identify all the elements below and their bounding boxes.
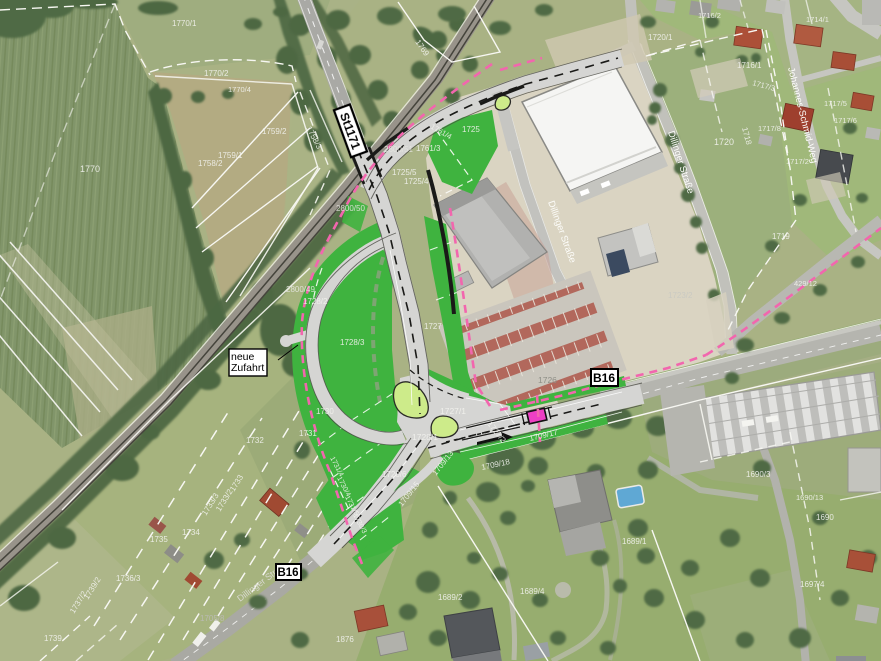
svg-text:1716/2: 1716/2 xyxy=(698,11,721,20)
svg-text:1705/8: 1705/8 xyxy=(200,614,225,623)
svg-text:1728/2: 1728/2 xyxy=(303,297,328,306)
svg-text:1736/3: 1736/3 xyxy=(116,574,141,583)
svg-text:1735: 1735 xyxy=(150,535,168,544)
svg-text:1689/2: 1689/2 xyxy=(438,593,463,602)
svg-text:2800/51: 2800/51 xyxy=(384,145,413,154)
svg-text:1690/13: 1690/13 xyxy=(796,493,823,502)
svg-text:1725: 1725 xyxy=(462,125,480,134)
svg-text:1727/1: 1727/1 xyxy=(440,406,466,416)
svg-text:1758/2: 1758/2 xyxy=(198,159,223,168)
svg-text:1731: 1731 xyxy=(299,429,317,438)
svg-text:1720/1: 1720/1 xyxy=(648,33,673,42)
svg-text:1716/1: 1716/1 xyxy=(737,61,762,70)
svg-text:2800/49: 2800/49 xyxy=(286,285,315,294)
svg-text:1689/1: 1689/1 xyxy=(622,537,647,546)
svg-text:1725/4: 1725/4 xyxy=(404,177,429,186)
svg-text:1719: 1719 xyxy=(772,232,790,241)
svg-text:1697/4: 1697/4 xyxy=(800,580,825,589)
svg-text:1689/4: 1689/4 xyxy=(520,587,545,596)
svg-text:1690/3: 1690/3 xyxy=(746,470,771,479)
svg-text:429/12: 429/12 xyxy=(794,279,817,288)
svg-text:1732: 1732 xyxy=(246,436,264,445)
svg-text:1717/8: 1717/8 xyxy=(758,124,781,133)
svg-text:1725/5: 1725/5 xyxy=(392,168,417,177)
svg-text:1876: 1876 xyxy=(336,635,354,644)
svg-text:1690: 1690 xyxy=(816,513,834,522)
svg-text:1759/2: 1759/2 xyxy=(262,127,287,136)
svg-text:1770/2: 1770/2 xyxy=(204,69,229,78)
svg-text:1714/1: 1714/1 xyxy=(806,15,829,24)
svg-text:1728/3: 1728/3 xyxy=(340,338,365,347)
svg-text:1717/5: 1717/5 xyxy=(824,99,847,108)
svg-text:1770/4: 1770/4 xyxy=(228,85,251,94)
svg-text:1717/6: 1717/6 xyxy=(834,116,857,125)
svg-text:1770: 1770 xyxy=(80,164,100,174)
svg-text:1734: 1734 xyxy=(182,528,200,537)
svg-text:1726: 1726 xyxy=(538,375,557,385)
svg-text:1717/2: 1717/2 xyxy=(786,157,809,166)
svg-text:B16: B16 xyxy=(277,567,298,579)
svg-text:Zufahrt: Zufahrt xyxy=(231,362,264,374)
svg-text:1730: 1730 xyxy=(316,407,334,416)
svg-text:1728/1: 1728/1 xyxy=(412,432,438,442)
svg-text:1739: 1739 xyxy=(44,634,62,643)
svg-text:B16: B16 xyxy=(593,371,615,385)
svg-text:1770/1: 1770/1 xyxy=(172,19,197,28)
svg-text:1761/3: 1761/3 xyxy=(416,144,441,153)
svg-text:1723/2: 1723/2 xyxy=(668,291,693,300)
svg-text:2800/50: 2800/50 xyxy=(336,204,365,213)
svg-text:1720: 1720 xyxy=(714,137,734,147)
svg-text:1727: 1727 xyxy=(424,322,442,331)
svg-text:1720/6: 1720/6 xyxy=(382,470,407,479)
